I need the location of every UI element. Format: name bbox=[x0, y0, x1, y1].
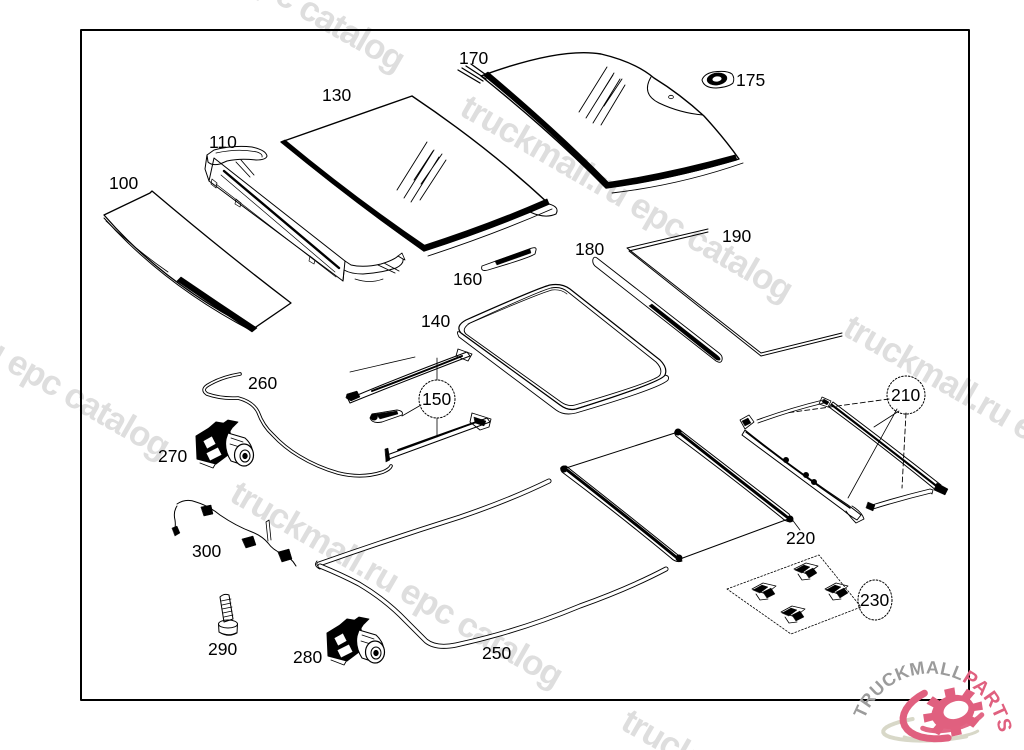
svg-text:160: 160 bbox=[453, 269, 482, 289]
svg-text:170: 170 bbox=[459, 48, 488, 68]
svg-text:150: 150 bbox=[422, 389, 451, 409]
svg-text:290: 290 bbox=[208, 639, 237, 659]
svg-text:270: 270 bbox=[158, 446, 187, 466]
svg-text:180: 180 bbox=[575, 239, 604, 259]
svg-text:140: 140 bbox=[421, 311, 450, 331]
svg-text:300: 300 bbox=[192, 541, 221, 561]
svg-text:110: 110 bbox=[209, 132, 237, 152]
svg-text:100: 100 bbox=[109, 173, 138, 193]
svg-text:220: 220 bbox=[786, 528, 815, 548]
svg-text:175: 175 bbox=[736, 70, 765, 90]
svg-text:130: 130 bbox=[322, 85, 351, 105]
svg-text:280: 280 bbox=[293, 647, 322, 667]
svg-text:190: 190 bbox=[722, 226, 751, 246]
svg-text:260: 260 bbox=[248, 373, 277, 393]
svg-text:230: 230 bbox=[860, 590, 889, 610]
svg-text:250: 250 bbox=[482, 643, 511, 663]
svg-text:210: 210 bbox=[891, 385, 920, 405]
